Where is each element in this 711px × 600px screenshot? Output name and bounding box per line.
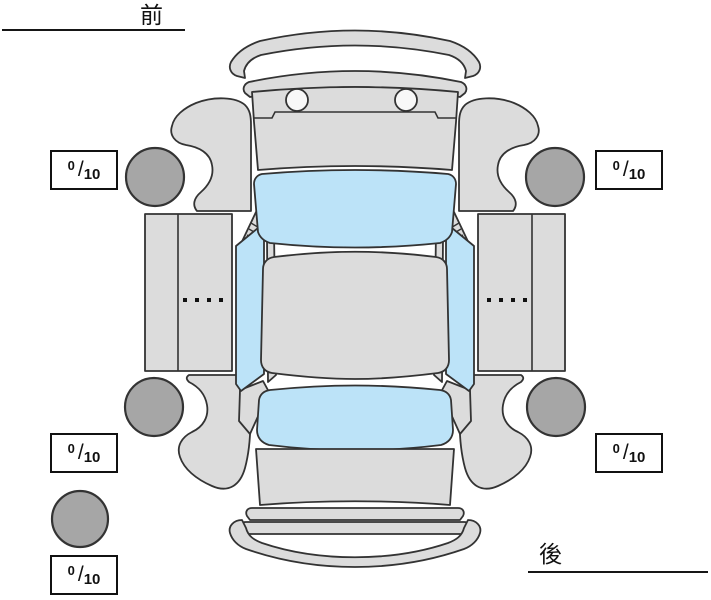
rear-window xyxy=(257,386,453,451)
right-side-panels xyxy=(434,98,585,488)
rear-underline xyxy=(528,571,708,573)
front-label: 前 xyxy=(140,4,164,27)
score-rear-left: 0 / 10 xyxy=(50,433,118,473)
roof-panel xyxy=(261,252,449,379)
spare-tire-icon xyxy=(52,491,108,547)
front-fender-panel xyxy=(171,98,251,211)
rear-panel-band-lower xyxy=(240,522,470,534)
score-max: 10 xyxy=(629,449,646,466)
rear-panel-band-upper xyxy=(246,508,464,520)
score-max: 10 xyxy=(629,166,646,183)
score-max: 10 xyxy=(84,571,101,588)
vehicle-condition-diagram: 前 後 0 / 10 0 / 10 0 / 10 0 / 10 0 / 10 xyxy=(0,0,711,600)
windshield xyxy=(254,170,456,248)
score-value: 0 xyxy=(68,441,75,456)
headlight-icon xyxy=(395,89,417,111)
car-exterior-svg xyxy=(0,0,711,600)
front-wheel-icon xyxy=(126,148,184,206)
score-spare: 0 / 10 xyxy=(50,555,118,595)
door-panel xyxy=(145,214,232,371)
rear-label: 後 xyxy=(539,543,563,566)
score-value: 0 xyxy=(613,441,620,456)
rear-wheel-icon xyxy=(125,378,183,436)
score-value: 0 xyxy=(613,158,620,173)
score-max: 10 xyxy=(84,449,101,466)
score-value: 0 xyxy=(68,563,75,578)
score-rear-right: 0 / 10 xyxy=(595,433,663,473)
score-front-left: 0 / 10 xyxy=(50,150,118,190)
left-side-panels xyxy=(125,98,276,488)
trunk-panel xyxy=(256,449,454,505)
side-window xyxy=(236,228,264,391)
score-max: 10 xyxy=(84,166,101,183)
front-underline xyxy=(2,29,185,31)
hood-panel xyxy=(252,87,458,170)
score-front-right: 0 / 10 xyxy=(595,150,663,190)
headlight-icon xyxy=(286,89,308,111)
score-value: 0 xyxy=(68,158,75,173)
